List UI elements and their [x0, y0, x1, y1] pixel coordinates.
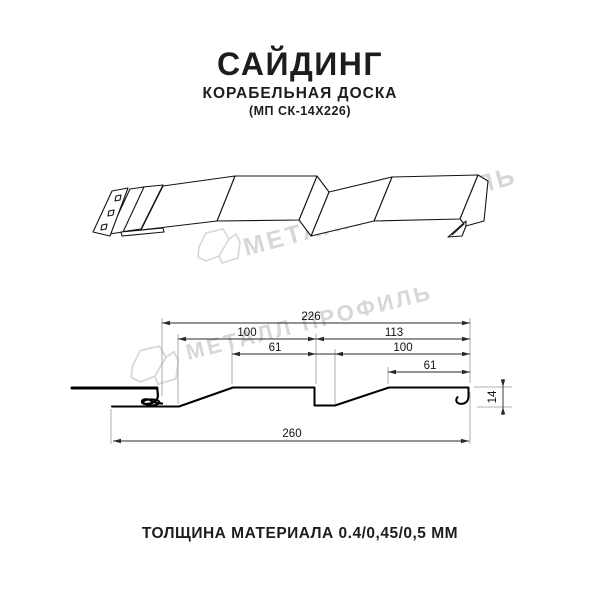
mounting-hole-1 [115, 195, 121, 201]
dim-label-61-right: 61 [424, 360, 437, 372]
profile-cross-section [72, 388, 469, 407]
mounting-hole-2 [108, 210, 114, 216]
product-drawing-page: САЙДИНГ КОРАБЕЛЬНАЯ ДОСКА (МП СК-14Х226)… [0, 0, 600, 600]
panel-profile [112, 388, 469, 407]
dim-label-61-left: 61 [269, 342, 282, 354]
dim-label-100-left: 100 [237, 327, 256, 339]
dim-label-100-right: 100 [393, 342, 412, 354]
right-end-foot [448, 221, 466, 237]
metall-profil-logo-icon [131, 346, 178, 384]
slope1-face [141, 176, 235, 230]
dim-label-113: 113 [385, 327, 403, 339]
mounting-hole-3 [101, 224, 107, 230]
dim-label-260: 260 [282, 428, 301, 440]
metall-profil-logo-icon [198, 229, 240, 263]
dim-label-226: 226 [301, 311, 320, 323]
dim-label-14: 14 [487, 390, 499, 403]
technical-drawing: МЕТАЛЛ ПРОФИЛЬ [0, 0, 600, 600]
thickness-note: ТОЛЩИНА МАТЕРИАЛА 0.4/0,45/0,5 ММ [0, 525, 600, 543]
